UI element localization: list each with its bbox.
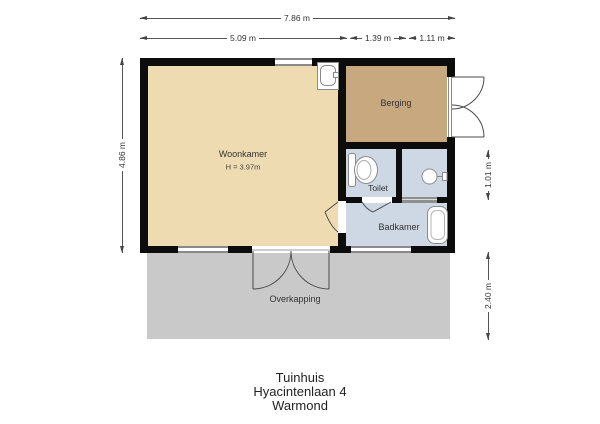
wall-right-upper	[447, 58, 455, 77]
berging-double-door	[452, 77, 484, 137]
plan-title: Tuinhuis	[0, 371, 600, 385]
floorplan-canvas: Woonkamer H = 3.97m Berging Toilet Badka…	[0, 0, 600, 424]
wall-above-badkamer-b	[392, 197, 402, 203]
shower-badkamer-opening	[402, 197, 437, 203]
wall-bottom-a	[140, 246, 178, 253]
toilet-label: Toilet	[368, 183, 388, 193]
dim-right-top-label: 1.01 m	[483, 159, 493, 191]
window-top	[275, 58, 312, 66]
wall-above-badkamer-a	[346, 197, 362, 203]
plan-city: Warmond	[0, 399, 600, 413]
wall-top-right	[312, 58, 455, 66]
badkamer-label: Badkamer	[378, 222, 419, 232]
overkapping-label: Overkapping	[269, 294, 320, 304]
dim-right-bottom-label: 2.40 m	[483, 280, 493, 312]
dim-top-seg1-label: 5.09 m	[227, 33, 259, 43]
berging-door-opening	[448, 77, 452, 137]
wall-woonkamer-divider-lower	[338, 233, 346, 246]
shower-room-floor	[402, 149, 447, 197]
woonkamer-label: Woonkamer	[219, 149, 267, 159]
wall-bottom-b	[228, 246, 252, 253]
wall-below-berging	[346, 142, 447, 149]
wall-right-lower	[447, 137, 455, 253]
woonkamer-height-note: H = 3.97m	[226, 163, 261, 172]
wall-top-left	[140, 58, 275, 66]
dim-top-seg3-label: 1.11 m	[416, 33, 447, 43]
dim-left-height-label: 4.86 m	[117, 139, 127, 171]
plan-address: Hyacintenlaan 4	[0, 385, 600, 399]
wall-bottom-c	[330, 246, 351, 253]
dim-top-seg2-label: 1.39 m	[362, 33, 394, 43]
wall-left	[140, 58, 148, 253]
window-bottom-left	[178, 246, 228, 253]
wall-bottom-d	[411, 246, 455, 253]
wall-woonkamer-divider-upper	[338, 66, 346, 201]
window-bottom-right	[351, 246, 411, 253]
wall-toilet-shower-divider	[396, 149, 402, 197]
title-block: Tuinhuis Hyacintenlaan 4 Warmond	[0, 371, 600, 413]
berging-label: Berging	[380, 98, 411, 108]
wall-above-badkamer-c	[437, 197, 447, 203]
dim-top-total-label: 7.86 m	[281, 13, 313, 23]
